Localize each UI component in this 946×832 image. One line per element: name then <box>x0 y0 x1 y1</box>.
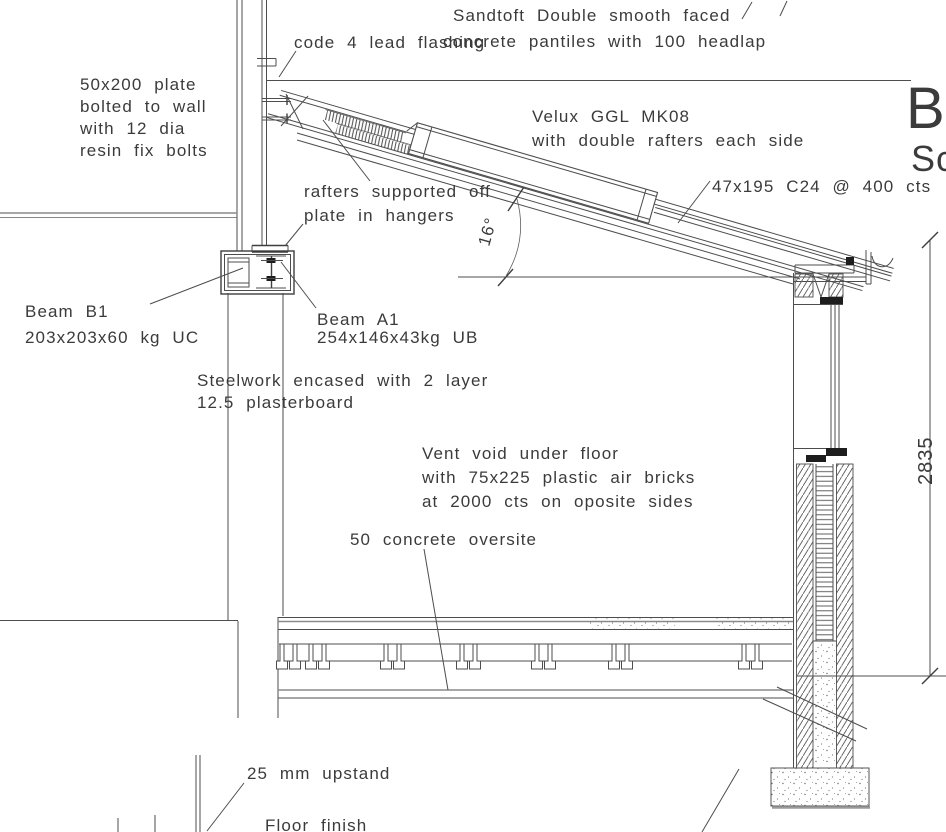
leader-oversite <box>424 549 448 690</box>
window-frame <box>794 304 844 449</box>
label-steelwork-1: Steelwork encased with 2 layer <box>197 371 488 390</box>
wall-height-dimension: 2835 <box>915 232 938 684</box>
title-letter-b: B <box>906 76 946 141</box>
label-beam-b1-1: Beam B1 <box>25 302 109 321</box>
label-vent-2: with 75x225 plastic air bricks <box>421 468 695 487</box>
leader-upstand <box>207 783 244 831</box>
label-beam-a1-2: 254x146x43kg UB <box>317 328 478 347</box>
label-plate-3: with 12 dia <box>79 119 185 138</box>
beam-and-block-floor <box>277 618 794 699</box>
label-plate-4: resin fix bolts <box>80 141 208 160</box>
screed-stipple <box>590 619 675 629</box>
window-head-lintel <box>820 297 843 304</box>
leader-top-tick-1 <box>742 2 752 19</box>
label-vent-1: Vent void under floor <box>422 444 619 463</box>
label-plate-1: 50x200 plate <box>80 75 197 94</box>
section-drawing: 16° <box>0 0 946 832</box>
strip-foundation <box>771 768 869 806</box>
bottom-details <box>118 755 200 832</box>
beam-a1-section <box>256 256 286 288</box>
label-beam-b1-2: 203x203x60 kg UC <box>25 328 199 347</box>
window-cill <box>806 448 847 462</box>
cavity-insulation <box>816 466 833 641</box>
label-plate-2: bolted to wall <box>80 97 207 116</box>
title-letter-s: Sc <box>911 138 946 179</box>
leader-beam-a1 <box>281 262 316 308</box>
label-beam-a1-1: Beam A1 <box>317 310 400 329</box>
label-pantiles-2: concrete pantiles with 100 headlap <box>443 32 766 51</box>
label-rafter-spec: 47x195 C24 @ 400 cts <box>712 177 931 196</box>
leader-top-tick-2 <box>780 1 787 16</box>
ceiling-lines <box>0 213 237 218</box>
leader-lines <box>150 1 787 832</box>
label-hangers-2: plate in hangers <box>304 206 455 225</box>
angle-tick-slope <box>508 187 524 211</box>
drawing-sheet: 16° <box>0 0 946 832</box>
leader-flashing <box>279 51 296 77</box>
floor-tee-beams <box>277 644 763 669</box>
label-vent-3: at 2000 cts on oposite sides <box>422 492 694 511</box>
label-velux-2: with double rafters each side <box>531 131 804 150</box>
label-steelwork-2: 12.5 plasterboard <box>197 393 354 412</box>
leader-beam-b1 <box>150 268 243 304</box>
roof-angle-dimension: 16° <box>458 187 866 286</box>
label-flashing: code 4 lead flashing <box>294 33 485 52</box>
oversite-slab-lines <box>278 690 793 698</box>
label-upstand: 25 mm upstand <box>247 764 390 783</box>
label-pantiles-1: Sandtoft Double smooth faced <box>453 6 731 25</box>
leader-rafter-spec <box>678 181 710 223</box>
label-roof-angle: 16° <box>475 215 501 248</box>
cavity-fill <box>814 641 835 765</box>
label-wall-height: 2835 <box>915 437 937 486</box>
label-oversite: 50 concrete oversite <box>350 530 537 549</box>
leader-offsheet <box>702 769 739 832</box>
label-hangers-1: rafters supported off <box>304 182 491 201</box>
label-floor-finish: Floor finish <box>265 816 367 832</box>
leader-hangers-2 <box>285 224 303 246</box>
outer-leaf <box>837 464 854 768</box>
inner-leaf <box>797 464 814 768</box>
label-velux-1: Velux GGL MK08 <box>532 107 690 126</box>
eaves-block <box>846 257 854 265</box>
right-wall <box>763 257 946 808</box>
